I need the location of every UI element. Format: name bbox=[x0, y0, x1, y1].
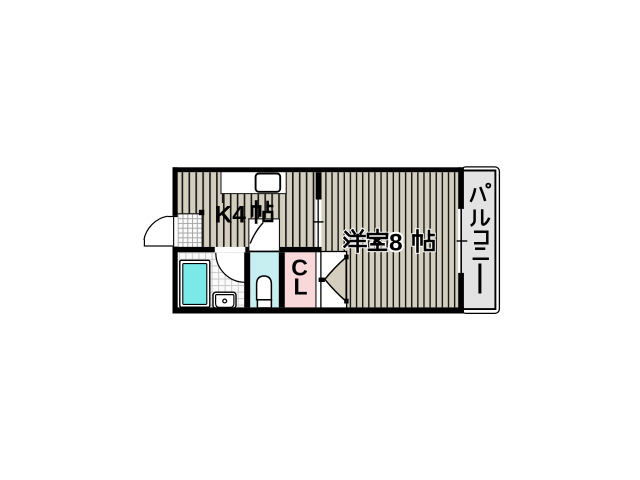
svg-text:K4: K4 bbox=[215, 201, 247, 228]
svg-text:L: L bbox=[293, 273, 307, 299]
svg-text:8: 8 bbox=[389, 230, 403, 257]
